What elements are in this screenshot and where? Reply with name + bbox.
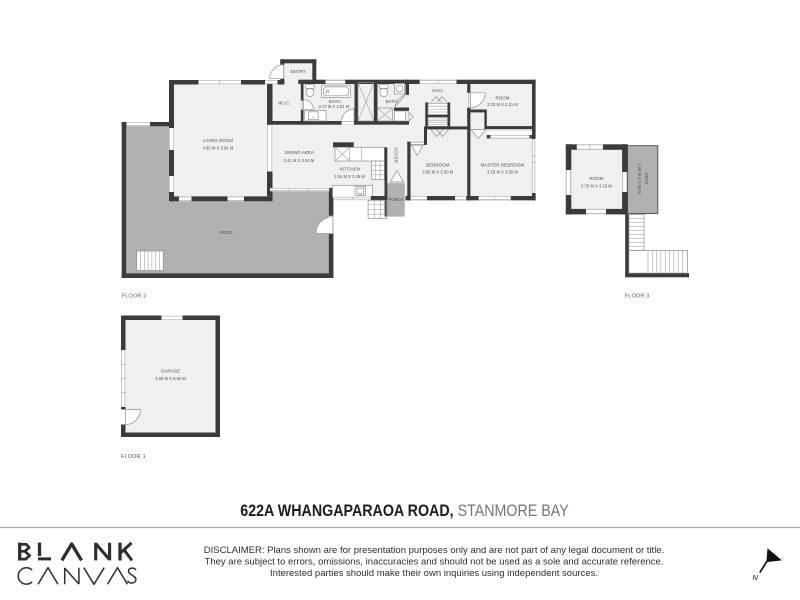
svg-text:3.23 M X 2.21 M: 3.23 M X 2.21 M (487, 102, 518, 107)
svg-text:PATIO: PATIO (219, 230, 233, 235)
svg-text:Interested parties should make: Interested parties should make their own… (270, 568, 598, 579)
svg-text:LIVING ROOM: LIVING ROOM (203, 138, 234, 143)
svg-text:PORCH: PORCH (388, 197, 403, 202)
svg-text:DECK: DECK (644, 173, 649, 185)
svg-text:4.82 M X 5.81 M: 4.82 M X 5.81 M (203, 146, 234, 151)
svg-text:ROOM: ROOM (495, 96, 509, 101)
svg-text:1.35 M X 3.35 M: 1.35 M X 3.35 M (637, 163, 642, 194)
svg-text:3.41 M X 3.24 M: 3.41 M X 3.24 M (284, 158, 315, 163)
svg-text:GARAGE: GARAGE (161, 369, 180, 374)
svg-text:KITCHEN: KITCHEN (340, 166, 360, 171)
svg-text:3.72 M X 2.01 M: 3.72 M X 2.01 M (319, 104, 350, 109)
svg-text:3.23 M X 3.50 M: 3.23 M X 3.50 M (487, 169, 518, 174)
svg-text:2.61 M X 2.49 M: 2.61 M X 2.49 M (334, 174, 365, 179)
svg-text:ENTRY: ENTRY (291, 69, 306, 74)
svg-text:622A WHANGAPARAOA ROAD, STANMO: 622A WHANGAPARAOA ROAD, STANMORE BAY (240, 502, 568, 520)
svg-text:2.95 M X 3.50 M: 2.95 M X 3.50 M (422, 169, 453, 174)
svg-text:DINING AREA: DINING AREA (285, 150, 314, 155)
svg-text:DISCLAIMER: Plans shown are fo: DISCLAIMER: Plans shown are for presenta… (204, 545, 664, 556)
svg-text:They are subject to errors, om: They are subject to errors, omissions, i… (205, 556, 664, 567)
svg-text:ROOM: ROOM (589, 176, 603, 181)
svg-text:HALL: HALL (432, 88, 444, 93)
svg-text:4.65 M X 5.82 M: 4.65 M X 5.82 M (155, 376, 186, 381)
svg-text:MASTER BEDROOM: MASTER BEDROOM (481, 163, 525, 168)
svg-text:N: N (753, 573, 759, 582)
svg-text:FLOOR 2: FLOOR 2 (122, 294, 147, 300)
svg-text:FLOOR 1: FLOOR 1 (121, 454, 146, 460)
svg-text:BEDROOM: BEDROOM (426, 163, 450, 168)
svg-text:FLOOR 3: FLOOR 3 (625, 294, 650, 300)
svg-text:W.I.C.: W.I.C. (278, 101, 291, 106)
svg-text:2.79 M X 3.15 M: 2.79 M X 3.15 M (581, 183, 612, 188)
svg-text:FOYER: FOYER (393, 147, 398, 163)
